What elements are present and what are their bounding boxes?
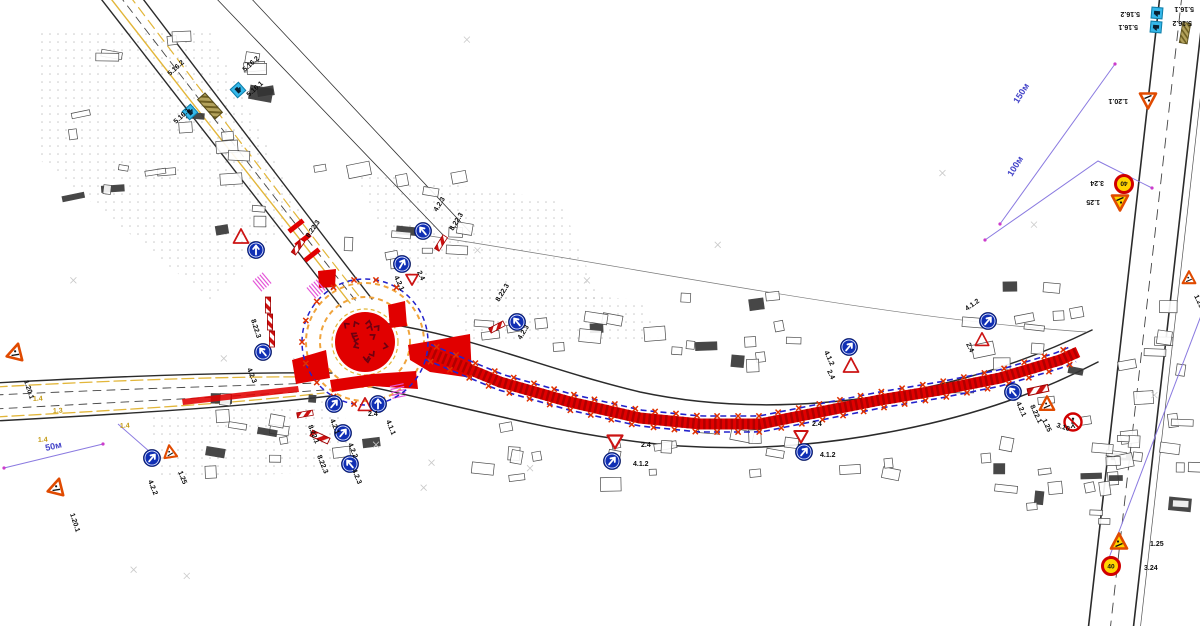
building-box	[681, 293, 691, 302]
building-box	[766, 448, 785, 458]
sign-code-label: 1.25	[1040, 418, 1052, 433]
building-box	[1160, 442, 1181, 455]
dimension-arrow	[998, 222, 1001, 225]
building-box	[103, 185, 112, 195]
building-box	[1069, 306, 1083, 318]
building-box	[215, 225, 229, 236]
building-box	[510, 450, 523, 465]
sign-code-label: 2.4	[825, 369, 836, 381]
building-box	[1172, 500, 1189, 508]
building-box	[1099, 481, 1111, 496]
building-box	[446, 245, 468, 255]
building-box	[672, 347, 683, 355]
sign-code-label: 4.1.2	[822, 350, 835, 367]
building-box	[1171, 419, 1193, 426]
building-box	[451, 170, 468, 184]
building-box	[995, 484, 1018, 493]
road-marking-label: 1.4	[38, 436, 48, 444]
bus-glyph	[1153, 25, 1159, 29]
sign-beacon-icon	[1027, 385, 1049, 396]
sign-code-label: 2.4	[368, 411, 378, 418]
warning-triangle	[48, 477, 67, 495]
building-box	[1048, 481, 1063, 494]
building-box	[994, 464, 1005, 474]
sign-code-label: 4.1.2	[964, 298, 981, 313]
building-box	[314, 164, 327, 172]
survey-cross	[429, 460, 435, 466]
dimension-arrow	[1150, 186, 1153, 189]
building-box	[1053, 311, 1064, 321]
sign-code-label: 2.4	[812, 421, 822, 428]
building-box	[1014, 313, 1034, 324]
sign-blue-circle-icon	[980, 313, 997, 330]
sign-code-label: 3.24	[1144, 565, 1158, 572]
sign-blue-circle-icon	[1005, 384, 1022, 401]
sign-code-label: 1.25	[1086, 198, 1100, 205]
sign-warn-temp-icon	[1111, 534, 1127, 549]
building-box	[1090, 510, 1103, 516]
building-box	[222, 131, 234, 140]
building-box	[279, 436, 288, 444]
survey-cross	[221, 355, 227, 361]
building-box	[228, 150, 250, 161]
sign-blue-circle-icon	[796, 444, 813, 461]
sign-code-label: 2.4	[641, 442, 651, 449]
warning-glyph	[1120, 201, 1122, 203]
building-box	[1117, 435, 1129, 442]
sign-code-label: 1.25	[1192, 294, 1200, 309]
building-box	[344, 237, 353, 251]
barrier-x-marker	[776, 410, 781, 415]
building-box	[179, 122, 193, 133]
building-box	[1024, 324, 1045, 331]
work-zone-strip	[182, 386, 299, 405]
building-box	[1003, 282, 1017, 292]
speed-limit-value: 40	[1120, 179, 1128, 186]
sign-code-label: 5.16.1	[1174, 5, 1194, 12]
sign-beacon-icon	[265, 297, 270, 313]
sign-beacon-icon	[269, 331, 274, 347]
road-marking-label: 1.4	[120, 422, 130, 430]
sign-code-label: 4.2.3	[350, 468, 362, 485]
sign-blue-circle-icon	[370, 396, 387, 413]
building-box	[1031, 343, 1044, 354]
sign-blue-circle-icon	[255, 344, 272, 361]
building-box	[205, 466, 217, 479]
building-box	[731, 355, 744, 368]
building-box	[309, 395, 317, 403]
sign-code-label: 4.1.2	[820, 452, 836, 459]
building-box	[774, 320, 785, 332]
building-box	[1128, 435, 1140, 447]
building-box	[1188, 462, 1200, 472]
building-box	[765, 291, 779, 301]
sign-warn-icon	[7, 342, 26, 360]
sign-blue-circle-icon	[604, 453, 621, 470]
speed-limit-value: 40	[1107, 564, 1115, 571]
dimension-label: 150м	[1011, 81, 1031, 105]
building-box	[395, 174, 408, 188]
sign-warn-temp-icon	[1112, 196, 1128, 211]
barrier-x-marker	[314, 299, 319, 304]
sign-bus-icon	[1151, 7, 1163, 19]
warning-triangle	[1112, 196, 1128, 211]
building-box	[746, 359, 759, 372]
striped-beacon-panel	[1027, 385, 1049, 396]
sign-blue-circle-icon	[248, 242, 265, 259]
edge-marking	[0, 377, 325, 387]
building-box	[269, 455, 280, 462]
barrier-x-marker	[314, 380, 319, 385]
building-box	[96, 53, 119, 61]
building-box	[1109, 475, 1122, 480]
survey-cross	[184, 573, 190, 579]
warning-triangle	[1183, 271, 1196, 283]
building-box	[686, 341, 695, 350]
building-box	[839, 464, 860, 474]
building-box	[254, 216, 266, 227]
sign-speed40-icon: 40	[1103, 558, 1120, 575]
building-box	[1043, 282, 1060, 293]
survey-cross	[131, 567, 137, 573]
striped-beacon-panel	[269, 331, 274, 347]
building-box	[1156, 330, 1172, 345]
building-box	[220, 173, 243, 186]
building-box	[499, 422, 513, 433]
sign-code-label: 4.2.3	[245, 367, 257, 384]
building-box	[1084, 482, 1095, 493]
building-box	[1027, 502, 1038, 510]
sign-beacon-icon	[267, 314, 272, 330]
building-box	[786, 337, 801, 344]
warning-triangle	[7, 342, 26, 360]
bus-glyph	[1154, 11, 1160, 15]
striped-beacon-panel	[265, 297, 270, 313]
building-box	[744, 336, 756, 347]
warning-glyph	[1148, 99, 1150, 101]
survey-cross	[70, 277, 76, 283]
sign-warn-line-icon	[844, 358, 859, 372]
temp-marking-hatch	[253, 273, 271, 291]
building-box	[532, 451, 542, 461]
sign-code-label: 5.16.2	[1120, 10, 1140, 17]
building-box	[62, 192, 85, 202]
building-box	[661, 440, 672, 453]
sign-code-label: 3.24	[1090, 179, 1104, 186]
sign-blue-circle-icon	[394, 256, 411, 273]
work-zone-wedge	[388, 301, 407, 328]
building-box	[172, 31, 191, 42]
sign-code-label: 5.16.2	[1172, 19, 1192, 26]
survey-cross	[939, 170, 945, 176]
warning-triangle	[1111, 534, 1127, 549]
sign-code-label: 4.1.1	[384, 419, 396, 436]
sign-code-label: 5.16.1	[1118, 23, 1138, 30]
striped-beacon-panel	[267, 314, 272, 330]
dimension-arrow	[2, 466, 5, 469]
building-box	[1176, 463, 1184, 472]
building-box	[535, 318, 548, 329]
sign-blue-circle-icon	[415, 223, 432, 240]
traffic-plan-canvas: 150м100м50м 4040 1.20.11.20.14.2.21.255.…	[0, 0, 1200, 626]
building-box	[1092, 443, 1114, 454]
sign-code-label: 8.22.3	[249, 318, 262, 339]
building-box	[68, 129, 77, 140]
building-box	[1133, 452, 1143, 462]
warning-glyph	[1045, 403, 1047, 405]
sign-code-label: 4.1.2	[633, 461, 649, 468]
sign-code-label: 4.2.1	[1014, 401, 1027, 418]
building-box	[1144, 348, 1166, 356]
road-marking-label: 1.3	[53, 407, 63, 415]
sign-code-label: 4.2.2	[146, 479, 158, 496]
building-box	[474, 320, 494, 328]
dimension-arrow	[983, 238, 986, 241]
sign-warn-icon	[1183, 271, 1196, 283]
building-box	[695, 342, 717, 351]
dimension-arrow	[101, 442, 104, 445]
road-marking-label: 1.4	[33, 395, 43, 403]
sign-blue-circle-icon	[841, 339, 858, 356]
building-box	[1118, 359, 1137, 371]
barrier-x-marker	[473, 360, 478, 365]
building-box	[981, 453, 991, 463]
building-box	[118, 165, 128, 172]
building-box	[1081, 473, 1102, 479]
survey-cross	[1031, 222, 1037, 228]
sign-speed40-icon: 40	[1116, 176, 1133, 193]
drawing-viewport: 150м100м50м 4040 1.20.11.20.14.2.21.255.…	[0, 0, 1200, 626]
building-box	[784, 437, 799, 449]
warning-glyph	[1117, 540, 1119, 542]
work-zone-strip	[303, 247, 320, 262]
building-box	[509, 474, 525, 482]
building-box	[252, 205, 265, 212]
sign-bus-icon	[1150, 21, 1162, 33]
building-box	[1106, 456, 1120, 465]
sign-code-label: 1.20.1	[68, 512, 81, 533]
building-box	[1134, 391, 1154, 405]
building-box	[579, 329, 602, 344]
work-zone-wedge	[330, 371, 418, 392]
warning-glyph	[1187, 277, 1189, 279]
sign-warn-icon	[1140, 94, 1156, 109]
building-box	[1099, 518, 1110, 524]
dimension-label: 100м	[1005, 154, 1025, 178]
warning-triangle	[1140, 94, 1156, 109]
building-box	[649, 469, 656, 475]
building-box	[216, 409, 230, 422]
building-box	[600, 477, 621, 491]
building-box	[644, 326, 666, 341]
survey-cross	[527, 465, 533, 471]
sign-blue-circle-icon	[144, 450, 161, 467]
building-box	[1068, 366, 1084, 375]
road-edge	[0, 373, 332, 383]
building-box	[422, 248, 432, 253]
survey-cross	[464, 37, 470, 43]
building-box	[269, 414, 285, 428]
building-box	[1038, 468, 1051, 475]
sign-blue-circle-icon	[326, 396, 343, 413]
roundabout-island-work-zone	[335, 312, 395, 372]
building-box	[999, 436, 1014, 452]
work-zone-wedge	[292, 350, 330, 384]
building-box	[1160, 301, 1178, 313]
building-box	[553, 342, 564, 351]
building-box	[884, 458, 893, 468]
dimension-arrow	[1113, 62, 1116, 65]
building-box	[471, 462, 494, 475]
building-box	[881, 467, 900, 481]
pedestrian-glyph	[1072, 418, 1074, 420]
survey-cross	[715, 242, 721, 248]
building-box	[391, 231, 410, 239]
survey-cross	[421, 485, 427, 491]
sign-code-label: 1.25	[1150, 541, 1164, 548]
warning-outline-triangle	[844, 358, 859, 372]
building-box	[749, 469, 761, 478]
building-box	[749, 298, 765, 311]
sign-warn-icon	[48, 477, 67, 495]
sign-code-label: 1.20.1	[1108, 97, 1128, 104]
